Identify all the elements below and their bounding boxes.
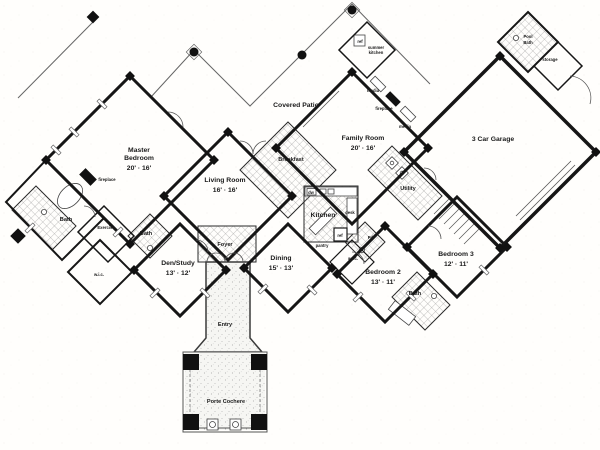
master-bedroom-dims: 20' · 16'	[127, 165, 152, 172]
master-bedroom-label2: Bedroom	[124, 155, 154, 162]
media-upper-label: media	[367, 88, 380, 93]
den-study-dims: 13' · 12'	[166, 270, 191, 277]
cochere-column	[251, 414, 267, 430]
cochere-column	[251, 354, 267, 370]
powder-label: Pd.	[368, 235, 375, 240]
family-fireplace-label: fireplace	[375, 106, 393, 111]
desk-label: desk	[345, 210, 355, 215]
bedroom-bath-label: Bath	[409, 291, 422, 297]
summer-ref-label: ref	[357, 39, 363, 44]
pool-bath-label2: Bath	[523, 40, 533, 45]
master-wic-label: w.i.c.	[93, 272, 104, 277]
dining-dims: 15' · 13'	[269, 265, 294, 272]
living-room-dims: 16' · 16'	[213, 187, 238, 194]
floorplan-canvas: Master Bedroom 20' · 16' Living Room 16'…	[0, 0, 600, 450]
utility-label: Utility	[400, 186, 416, 192]
cochere-column	[183, 414, 199, 430]
family-room-dims: 20' · 16'	[351, 145, 376, 152]
bedroom2-dims: 13' · 11'	[371, 279, 395, 286]
foyer-label: Foyer	[217, 242, 233, 248]
bedroom2-wic-label: w.i.c.	[347, 256, 358, 261]
master-bath-label: Bath	[60, 217, 73, 223]
summer-kitchen-label2: kitchen	[369, 50, 384, 55]
exercise-label: Exercise	[97, 225, 115, 230]
family-room-label: Family Room	[342, 135, 385, 142]
den-study-label: Den/Study	[161, 260, 195, 267]
entry-label: Entry	[218, 322, 233, 328]
master-fireplace-label: fireplace	[98, 177, 116, 182]
living-room-label: Living Room	[204, 177, 245, 184]
floorplan-page: Master Bedroom 20' · 16' Living Room 16'…	[0, 0, 600, 450]
kitchen-label: Kitchen	[311, 212, 336, 219]
kitchen-ref-label: ref	[337, 233, 343, 238]
sink	[328, 189, 334, 194]
bedroom2-label: Bedroom 2	[365, 269, 401, 276]
cochere-column	[183, 354, 199, 370]
pantry-label: pantry	[316, 243, 329, 248]
covered-patio-label: Covered Patio	[273, 102, 319, 109]
media-lower-label: media	[399, 124, 412, 129]
storage-label: storage	[542, 57, 558, 62]
desk-counter	[347, 198, 357, 234]
dining-label: Dining	[270, 255, 291, 262]
bedroom3-label: Bedroom 3	[438, 251, 474, 258]
porte-cochere-label: Porte Cochere	[207, 399, 245, 405]
master-bedroom-label: Master	[128, 147, 150, 154]
garage-label: 3 Car Garage	[472, 136, 515, 143]
bedroom3-dims: 12' · 11'	[444, 261, 468, 268]
dishwasher-label: dw	[308, 190, 315, 195]
den-bath-label: Bath	[140, 231, 153, 237]
pool-bath-label: Pool	[523, 34, 532, 39]
breakfast-label: Breakfast	[278, 157, 304, 163]
